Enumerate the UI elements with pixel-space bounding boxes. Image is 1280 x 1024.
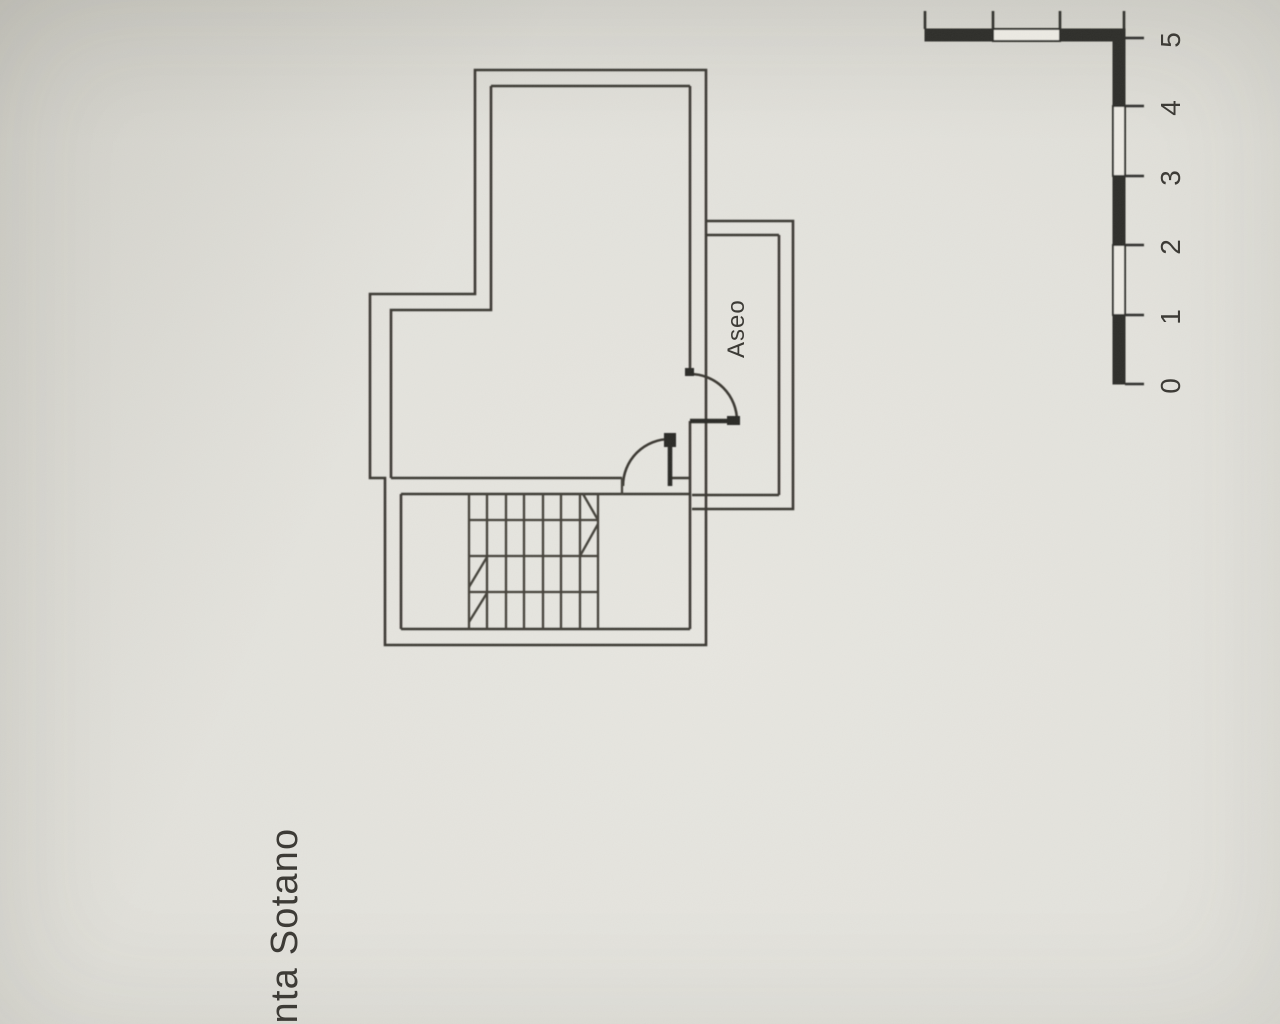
paper-grain-texture [0,0,1280,1024]
floor-plan-drawing: Aseo Planta Sotano 5 4 3 2 1 0 [0,0,1280,1024]
scanned-floor-plan-sheet: Aseo Planta Sotano 5 4 3 2 1 0 [0,0,1280,1024]
